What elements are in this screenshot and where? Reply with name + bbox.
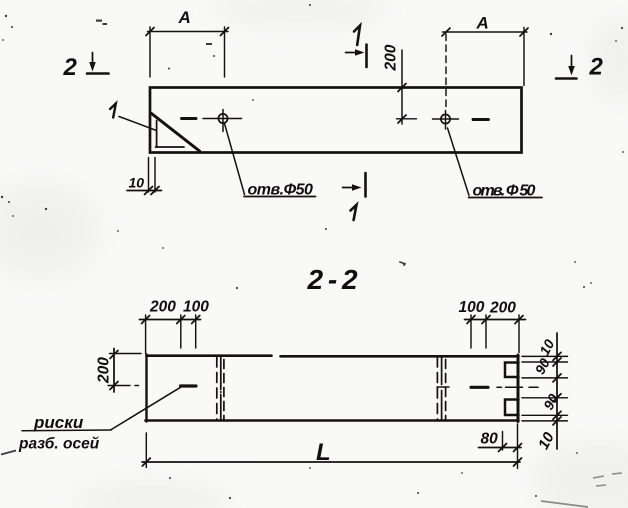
svg-text:отв.Ф50: отв.Ф50 [248, 182, 314, 199]
svg-text:отв. Ф 50: отв. Ф 50 [473, 183, 536, 200]
svg-text:А: А [476, 14, 489, 33]
svg-text:риски: риски [33, 413, 84, 432]
svg-text:2 - 2: 2 - 2 [307, 264, 358, 295]
svg-text:80: 80 [481, 431, 499, 448]
svg-text:200: 200 [149, 299, 176, 316]
svg-text:2: 2 [63, 54, 78, 81]
svg-text:А: А [178, 8, 191, 27]
svg-text:100: 100 [183, 299, 209, 316]
svg-text:2: 2 [589, 54, 604, 81]
svg-text:200: 200 [383, 44, 400, 71]
svg-text:10: 10 [129, 175, 145, 191]
svg-text:разб. осей: разб. осей [18, 436, 100, 453]
svg-text:200: 200 [96, 357, 113, 384]
svg-text:100: 100 [459, 299, 485, 316]
svg-text:L: L [316, 439, 331, 466]
svg-text:200: 200 [489, 300, 516, 317]
